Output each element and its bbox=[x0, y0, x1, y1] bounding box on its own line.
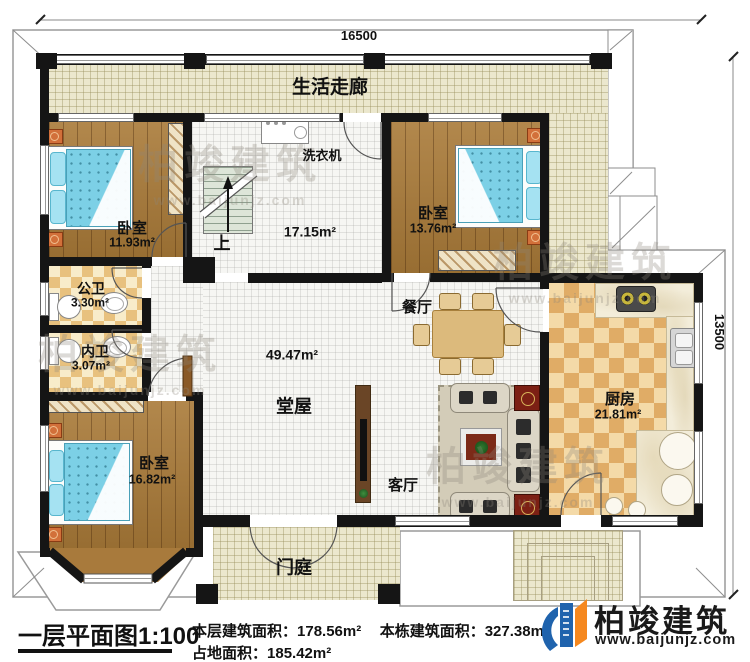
land-area-label: 占地面积： bbox=[192, 645, 267, 662]
bay-window bbox=[50, 548, 186, 583]
bedroom-label: 卧室 bbox=[139, 456, 169, 472]
door-inner-bath bbox=[112, 330, 142, 358]
door-bedroom-bottom-left bbox=[148, 358, 186, 396]
stairs-up-arrow bbox=[223, 176, 233, 232]
land-area-value: 185.42m² bbox=[267, 645, 331, 662]
stair-hall-area: 17.15m² bbox=[284, 225, 336, 240]
kitchen-label: 厨房 bbox=[605, 392, 635, 408]
washing-machine-label: 洗衣机 bbox=[302, 149, 341, 163]
corridor-label: 生活走廊 bbox=[292, 78, 368, 98]
hall-label: 堂屋 bbox=[276, 398, 312, 417]
door-bedroom-top-left bbox=[152, 223, 186, 257]
door-dining-kitchen bbox=[496, 288, 540, 332]
drawing-title: 一层平面图1:100 bbox=[18, 616, 199, 651]
floor-area-label: 本层建筑面积： bbox=[192, 623, 297, 640]
floor-plan-sheet: 柏竣建筑www.baijunjz.com 柏竣建筑www.baijunjz.co… bbox=[0, 0, 750, 662]
stats-line-1: 本层建筑面积：178.56m² 本栋建筑面积：327.38m² bbox=[192, 620, 549, 641]
inner-bath-label: 内卫 bbox=[81, 345, 109, 360]
dining-label: 餐厅 bbox=[402, 300, 432, 316]
door-laundry bbox=[344, 122, 381, 159]
living-label: 客厅 bbox=[388, 478, 418, 494]
public-bath-area: 3.30m² bbox=[71, 297, 109, 310]
title-underline bbox=[18, 649, 172, 653]
door-public-bath bbox=[112, 268, 142, 298]
bedroom-area: 16.82m² bbox=[129, 473, 176, 486]
building-area-label: 本栋建筑面积： bbox=[380, 623, 485, 640]
inner-bath-area: 3.07m² bbox=[72, 360, 110, 373]
door-kitchen-south bbox=[561, 473, 601, 515]
public-bath-label: 公卫 bbox=[77, 282, 105, 297]
floor-area-value: 178.56m² bbox=[297, 623, 361, 640]
bedroom-area: 11.93m² bbox=[109, 236, 155, 249]
porch-label: 门庭 bbox=[276, 559, 312, 578]
bedroom-area: 13.76m² bbox=[410, 222, 457, 235]
dimension-lines bbox=[40, 20, 733, 595]
brand-logo-icon bbox=[538, 595, 592, 659]
hall-area: 49.47m² bbox=[266, 348, 318, 363]
dimension-right: 13500 bbox=[712, 314, 726, 350]
plan-overlay bbox=[0, 0, 750, 662]
stats-line-2: 占地面积：185.42m² bbox=[192, 642, 331, 662]
brand-url: www.baijunjz.com bbox=[595, 632, 736, 648]
stairs-up-label: 上 bbox=[214, 235, 231, 253]
bedroom-label: 卧室 bbox=[418, 206, 448, 222]
kitchen-area: 21.81m² bbox=[595, 408, 642, 421]
dimension-top: 16500 bbox=[341, 29, 377, 43]
door-leaf bbox=[183, 356, 192, 396]
